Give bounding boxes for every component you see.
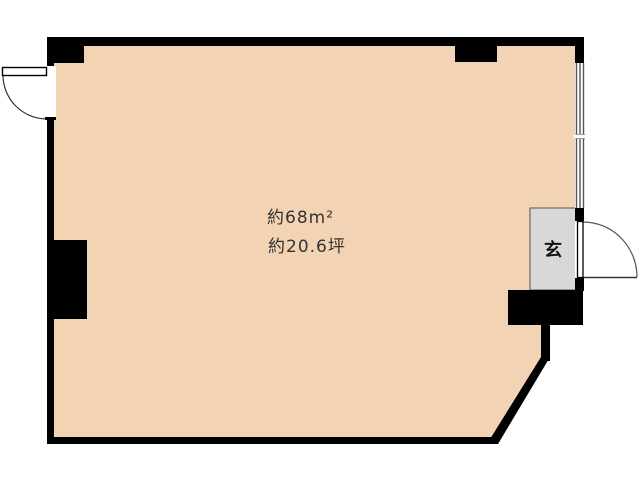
- pillar-top-right: [455, 37, 497, 62]
- left-door-swing-arc-icon: [3, 76, 46, 119]
- wall-right-lower: [541, 325, 550, 361]
- wall-block-above-entrance-door: [575, 208, 584, 221]
- corner-top-right: [575, 37, 584, 63]
- floor-plan-image: 約68m² 約20.6坪 玄: [0, 0, 640, 480]
- area-label-tsubo: 約20.6坪: [268, 232, 346, 257]
- entrance-door-swing-arc-icon: [583, 222, 637, 277]
- wall-sliver-right: [575, 278, 584, 291]
- wall-top: [47, 37, 583, 46]
- entrance-door: [575, 221, 637, 278]
- entrance-label: 玄: [530, 208, 576, 290]
- wall-block-lower-right: [508, 290, 583, 325]
- left-door-leaf: [3, 68, 47, 76]
- right-window: [574, 63, 586, 208]
- area-label-square-meters: 約68m²: [267, 203, 334, 228]
- wall-bottom: [47, 437, 496, 444]
- pillar-left: [47, 240, 87, 319]
- left-door: [3, 66, 57, 120]
- left-door-sill-tick: [45, 117, 56, 120]
- pillar-top-left: [47, 37, 84, 63]
- entrance-door-leaf: [578, 222, 584, 278]
